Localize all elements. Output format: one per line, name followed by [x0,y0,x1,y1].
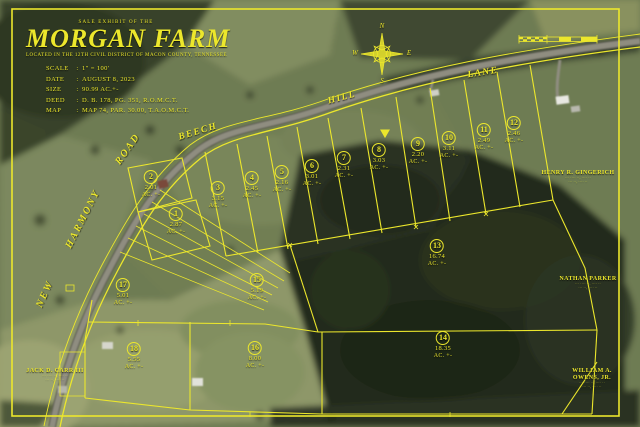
lot-number: 16 [248,341,262,355]
detail-separator: : [73,85,82,96]
neighbor-label-gingerich: HENRY R. GINGERICH ··· ···· ··, ···· ·· … [542,170,615,185]
lot-number: 3 [211,181,225,195]
detail-row-size: SIZE : 90.99 AC.+- [46,85,206,96]
lot-label-2: 22.01AC. +- [142,170,161,198]
lot-number: 17 [116,278,130,292]
compass-north-label: N [380,22,385,30]
lot-label-5: 52.16AC. +- [273,165,292,193]
detail-row-scale: SCALE : 1" = 100' [46,64,206,75]
lot-acreage-suffix: AC. +- [167,229,186,235]
detail-row-map: MAP : MAP 74, PAR. 30.00, T.A.O.M.C.T. [46,106,206,117]
detail-label: SCALE [46,64,73,75]
detail-value: 90.99 AC.+- [82,85,119,96]
lot-acreage-suffix: AC. +- [209,203,228,209]
lot-acreage-suffix: AC. +- [273,187,292,193]
detail-label: MAP [46,106,73,117]
lot-label-11: 112.49AC. +- [475,123,494,151]
lot-acreage-suffix: AC. +- [409,159,428,165]
lot-number: 2 [144,170,158,184]
lot-number: 6 [305,159,319,173]
neighbor-label-carr: JACK D. CARR III ··· ···· ··, ···· ·· ··… [26,368,83,383]
lot-label-9: 92.20AC. +- [409,137,428,165]
detail-value: MAP 74, PAR. 30.00, T.A.O.M.C.T. [82,106,189,117]
title-subtitle: LOCATED IN THE 12TH CIVIL DISTRICT OF MA… [26,53,206,58]
lot-label-7: 72.31AC. +- [335,151,354,179]
neighbor-label-owens: WILLIAM A. OWENS, JR. ··· ···· ··, ···· … [572,368,612,390]
lot-acreage-suffix: AC. +- [114,300,133,306]
detail-value: D. B. 178, PG. 351, R.O.M.C.T. [82,96,178,107]
neighbor-map-ref: ··· ··, ···· ·· [542,181,615,185]
lot-number: 7 [337,151,351,165]
compass-east-label: E [407,49,411,57]
detail-separator: : [73,106,82,117]
lot-number: 1 [169,207,183,221]
lot-number: 13 [430,239,444,253]
lot-number: 10 [442,131,456,145]
lot-label-6: 63.01AC. +- [303,159,322,187]
lot-number: 18 [127,342,141,356]
lot-label-15: 155.19AC. +- [248,273,267,301]
lot-label-14: 1418.35AC. +- [434,331,453,359]
lot-acreage-suffix: AC. +- [243,193,262,199]
neighbor-map-ref: ··· ··, ···· ·· [26,379,83,383]
map-details: SCALE : 1" = 100' DATE : AUGUST 8, 2023 … [46,64,206,117]
lot-number: 11 [477,123,491,137]
lot-number: 4 [245,171,259,185]
detail-label: DATE [46,75,73,86]
detail-row-deed: DEED : D. B. 178, PG. 351, R.O.M.C.T. [46,96,206,107]
plat-map: SALE EXHIBIT OF THE MORGAN FARM LOCATED … [0,0,640,427]
lot-label-4: 42.45AC. +- [243,171,262,199]
neighbor-map-ref: ··· ··, ···· ·· [572,386,612,390]
lot-acreage-suffix: AC. +- [246,363,265,369]
lot-label-3: 33.15AC. +- [209,181,228,209]
lot-acreage-suffix: AC. +- [303,181,322,187]
detail-separator: : [73,64,82,75]
detail-value: AUGUST 8, 2023 [82,75,135,86]
lot-acreage-suffix: AC. +- [142,192,161,198]
lot-label-17: 175.01AC. +- [114,278,133,306]
lot-label-18: 185.55AC. +- [125,342,144,370]
lot-acreage-suffix: AC. +- [370,165,389,171]
lot-number: 5 [275,165,289,179]
lot-number: 14 [436,331,450,345]
lot-label-12: 122.46AC. +- [505,116,524,144]
lot-label-16: 168.00AC. +- [246,341,265,369]
lot-acreage-suffix: AC. +- [440,153,459,159]
lot-number: 9 [411,137,425,151]
detail-row-date: DATE : AUGUST 8, 2023 [46,75,206,86]
detail-label: DEED [46,96,73,107]
lot-acreage-suffix: AC. +- [248,295,267,301]
lot-acreage-suffix: AC. +- [475,145,494,151]
lot-acreage-suffix: AC. +- [335,173,354,179]
neighbor-map-ref: ··· ··, ···· ·· [559,287,616,291]
detail-value: 1" = 100' [82,64,109,75]
detail-separator: : [73,75,82,86]
lot-number: 12 [507,116,521,130]
lot-number: 15 [250,273,264,287]
lot-number: 8 [372,143,386,157]
compass-west-label: W [352,49,358,57]
lot-acreage-suffix: AC. +- [428,261,447,267]
neighbor-label-parker: NATHAN PARKER ··· ···· ··, ···· ·· ··· ·… [559,276,616,291]
lot-label-8: 83.03AC. +- [370,143,389,171]
lot-label-10: 103.11AC. +- [440,131,459,159]
lot-acreage-suffix: AC. +- [125,364,144,370]
detail-separator: : [73,96,82,107]
compass-south-label: S [380,77,384,85]
lot-label-1: 12.87AC. +- [167,207,186,235]
lot-acreage-suffix: AC. +- [434,353,453,359]
title-block: SALE EXHIBIT OF THE MORGAN FARM LOCATED … [26,20,206,117]
page-title: MORGAN FARM [26,25,206,52]
lot-label-13: 1316.74AC. +- [428,239,447,267]
detail-label: SIZE [46,85,73,96]
lot-acreage-suffix: AC. +- [505,138,524,144]
